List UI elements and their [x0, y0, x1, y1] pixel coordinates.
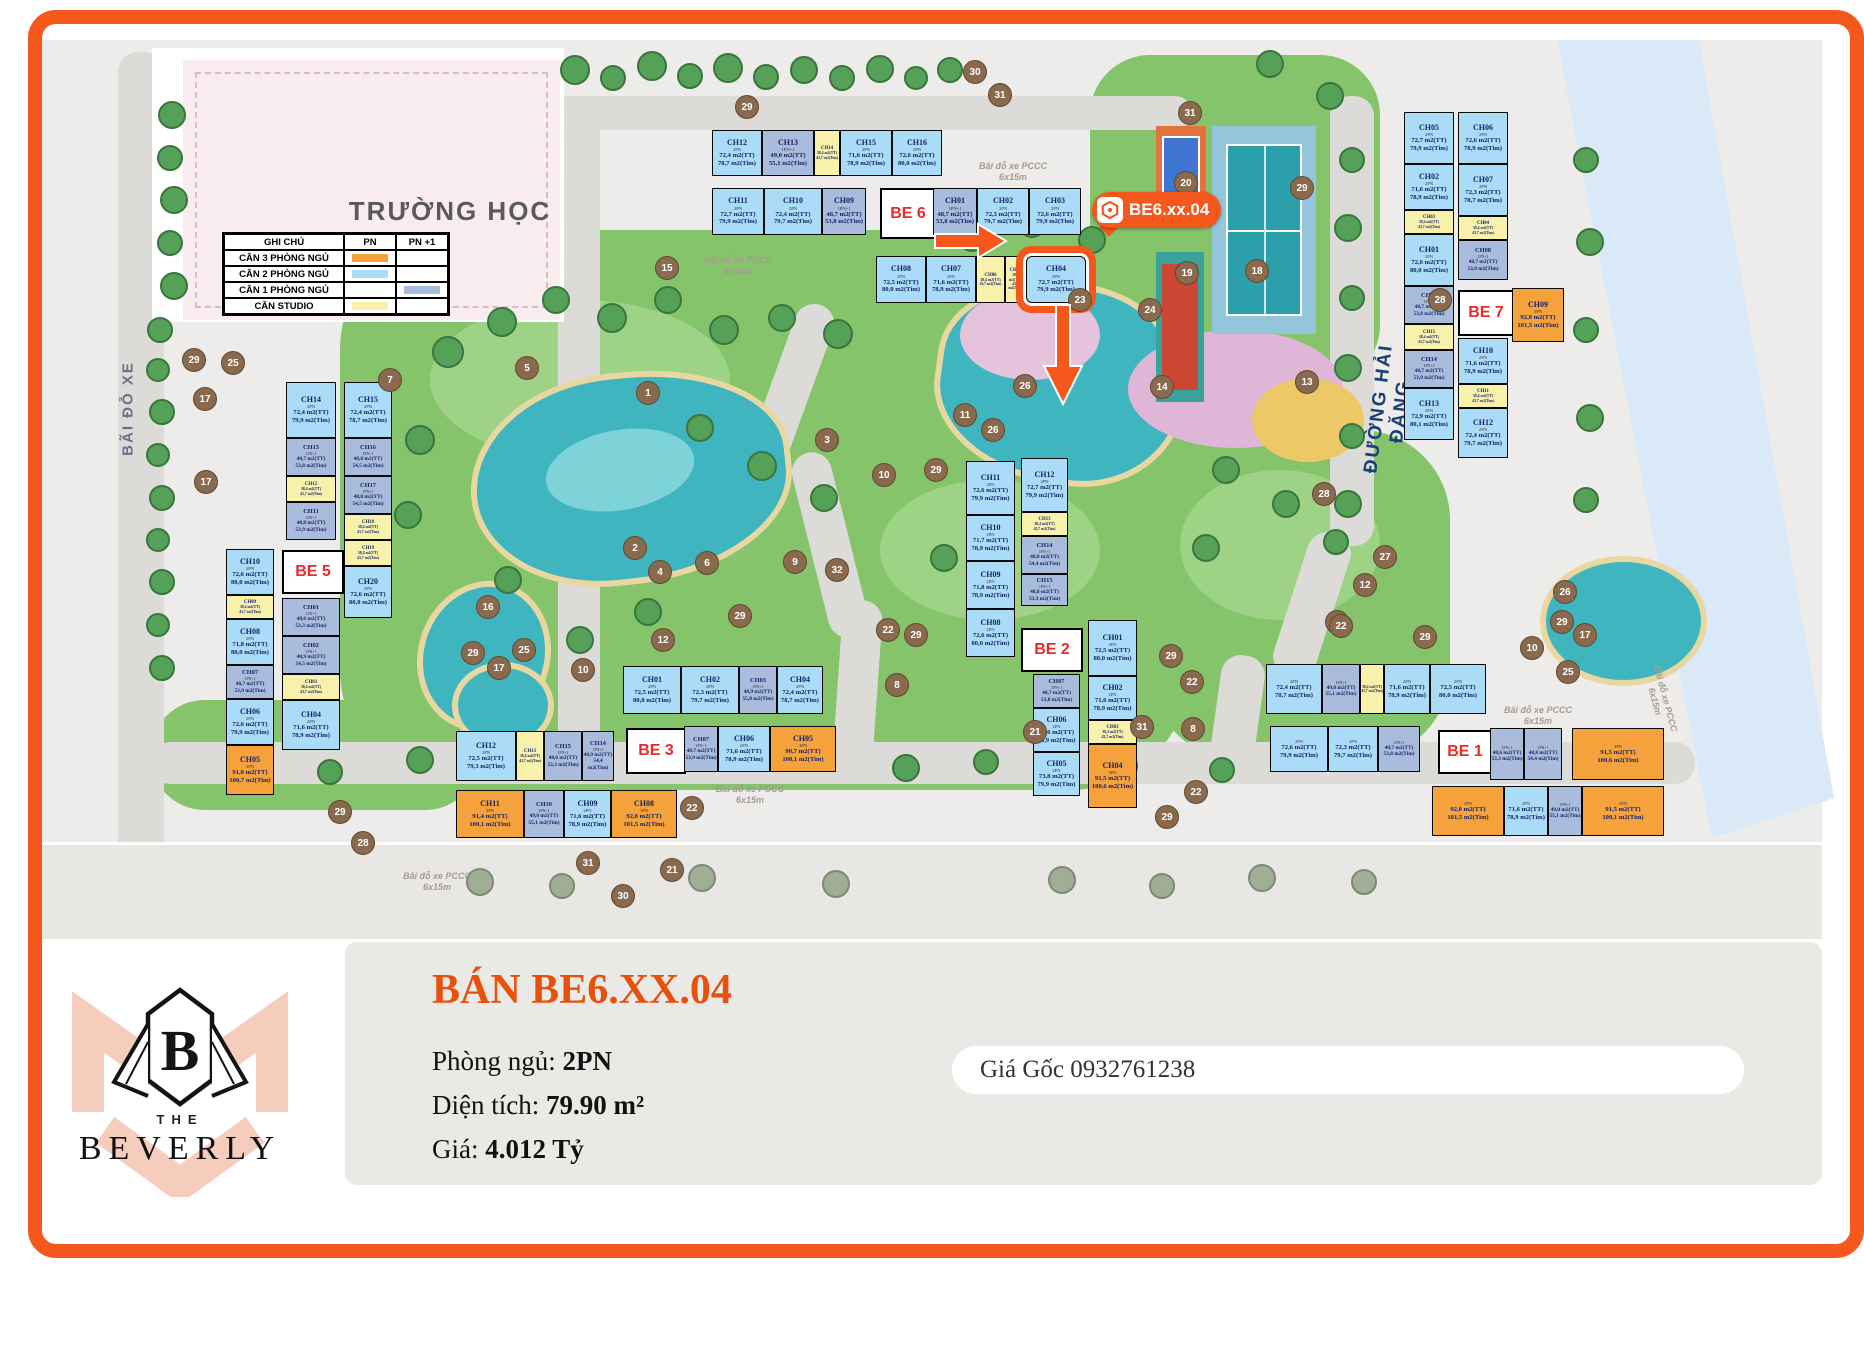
- building-group-be5: CH011PN+148,6 m2(TT)53,3 m2(Tim)CH021PN+…: [282, 598, 340, 750]
- amenity-marker: 29: [1550, 610, 1574, 634]
- unit-cell-be6-ch14[interactable]: CH14Studio38,4 m2(TT)43,7 m2(Tim): [814, 130, 840, 176]
- field-row: Diện tích: 79.90 m²: [432, 1090, 644, 1121]
- unit-cell-be2-ch15[interactable]: CH151PN+148,8 m2(TT)53,3 m2(Tim): [1021, 574, 1068, 606]
- unit-area: 101,5 m2(Tim): [1447, 814, 1488, 822]
- unit-cell-be7-ch12[interactable]: CH122PN72,4 m2(TT)79,7 m2(Tim): [1458, 408, 1508, 458]
- unit-area: 72,6 m2(TT): [232, 721, 267, 729]
- parking-label-line: Bãi đỗ xe PCCC: [1504, 705, 1572, 716]
- legend-header-cell: PN +1: [396, 234, 448, 250]
- unit-code: CH03: [1045, 197, 1065, 205]
- tree-icon: [146, 443, 170, 467]
- unit-area: 71,6 m2(TT): [1389, 684, 1424, 692]
- unit-area: 53,8 m2(Tim): [1041, 697, 1072, 703]
- unit-area: 79,9 m2(Tim): [719, 218, 757, 226]
- unit-area: 91,0 m2(TT): [232, 769, 267, 777]
- amenity-marker: 17: [194, 470, 218, 494]
- amenity-marker: 29: [328, 800, 352, 824]
- unit-cell-be3-ch03[interactable]: CH031PN+148,9 m2(TT)55,0 m2(Tim): [739, 666, 777, 714]
- unit-area: 72,4 m2(TT): [293, 409, 328, 417]
- parking-label-line: 6x15m: [704, 266, 772, 277]
- building-group-be1: 2PN72,4 m2(TT)78,7 m2(Tim)1PN+149,0 m2(T…: [1266, 664, 1486, 714]
- building-group-be6: CH112PN72,7 m2(TT)79,9 m2(Tim)CH102PN72,…: [712, 188, 866, 235]
- tree-icon: [709, 315, 739, 345]
- unit-area: 91,5 m2(TT): [1605, 806, 1640, 814]
- unit-area: 53,3 m2(Tim): [547, 762, 578, 768]
- tree-icon: [634, 598, 662, 626]
- callout-logo-icon: [1097, 197, 1123, 223]
- unit-cell-be3-ch07[interactable]: CH071PN+148,7 m2(TT)53,9 m2(Tim): [684, 726, 718, 772]
- unit-area: 55,1 m2(Tim): [528, 820, 559, 826]
- unit-cell-be3-ch12[interactable]: CH122PN72,5 m2(TT)79,3 m2(Tim): [456, 731, 516, 781]
- legend-swatch: [404, 286, 440, 294]
- unit-cell-be2-ch14[interactable]: CH141PN+148,8 m2(TT)54,4 m2(Tim): [1021, 536, 1068, 574]
- unit-cell-be2-ch10[interactable]: CH102PN71,7 m2(TT)78,9 m2(Tim): [966, 515, 1015, 561]
- unit-cell-be5-ch16[interactable]: CH161PN+148,8 m2(TT)54,5 m2(Tim): [344, 438, 392, 476]
- unit-area: 72,4 m2(TT): [775, 211, 810, 219]
- info-title: BÁN BE6.XX.04: [432, 966, 732, 1014]
- unit-cell-be6-ch08[interactable]: CH082PN72,5 m2(TT)80,0 m2(Tim): [876, 256, 926, 303]
- unit-area: 79,9 m2(Tim): [1036, 218, 1074, 226]
- unit-cell-be2-ch01[interactable]: CH012PN72,5 m2(TT)80,0 m2(Tim): [1088, 620, 1137, 676]
- tree-icon: [494, 566, 522, 594]
- unit-area: 78,7 m2(Tim): [718, 160, 756, 168]
- unit-cell-be2-ch05[interactable]: CH052PN73,8 m2(TT)79,9 m2(Tim): [1033, 752, 1080, 796]
- callout-label: BE6.xx.04: [1129, 200, 1209, 220]
- unit-cell-be7-ch13[interactable]: CH132PN72,9 m2(TT)80,1 m2(Tim): [1404, 388, 1454, 440]
- legend-swatch-pn1: [396, 282, 448, 298]
- unit-area: 71,7 m2(TT): [973, 537, 1008, 545]
- unit-code: CH06: [1047, 716, 1067, 724]
- tree-icon: [1248, 864, 1276, 892]
- unit-cell-be2-ch02[interactable]: CH022PN71,6 m2(TT)78,9 m2(Tim): [1088, 676, 1137, 720]
- unit-cell-be3-ch09[interactable]: CH092PN71,6 m2(TT)78,9 m2(Tim): [564, 790, 611, 838]
- unit-area: 72,3 m2(TT): [1335, 744, 1370, 752]
- unit-area: 80,0 m2(Tim): [1439, 692, 1477, 700]
- tree-icon: [930, 544, 958, 572]
- unit-area: 72,5 m2(TT): [468, 755, 503, 763]
- unit-code: CH04: [790, 676, 810, 684]
- unit-cell-be5-ch09[interactable]: CH09Studio38,4 m2(TT)43,7 m2(Tim): [226, 595, 274, 619]
- tree-icon: [1339, 285, 1365, 311]
- unit-area: 55,1 m2(Tim): [1325, 691, 1356, 697]
- amenity-marker: 13: [1295, 370, 1319, 394]
- unit-cell-be3-ch10[interactable]: CH101PN+149,0 m2(TT)55,1 m2(Tim): [524, 790, 564, 838]
- unit-cell-be6-ch03[interactable]: CH032PN72,6 m2(TT)79,9 m2(Tim): [1029, 188, 1081, 235]
- unit-cell-be3-ch01[interactable]: CH012PN72,5 m2(TT)80,0 m2(Tim): [623, 666, 681, 714]
- unit-cell-be5-ch20[interactable]: CH202PN72,6 m2(TT)80,0 m2(Tim): [344, 566, 392, 618]
- amenity-marker: 22: [1184, 780, 1208, 804]
- unit-area: 100,6 m2(Tim): [1597, 757, 1638, 765]
- amenity-marker: 3: [815, 428, 839, 452]
- amenity-marker: 19: [1175, 261, 1199, 285]
- unit-area: 100,1 m2(Tim): [782, 756, 823, 764]
- unit-cell-be2-ch07[interactable]: CH071PN+148,7 m2(TT)53,8 m2(Tim): [1033, 674, 1080, 708]
- amenity-marker: 28: [351, 831, 375, 855]
- unit-area: 55,0 m2(Tim): [742, 696, 773, 702]
- unit-area: 72,5 m2(TT): [1440, 684, 1475, 692]
- unit-cell-be3-ch02[interactable]: CH022PN72,3 m2(TT)79,7 m2(Tim): [681, 666, 739, 714]
- legend-row: CĂN 2 PHÒNG NGỦ: [224, 266, 448, 282]
- legend-row: CĂN 1 PHÒNG NGỦ: [224, 282, 448, 298]
- unit-area: 79,7 m2(Tim): [1334, 752, 1372, 760]
- unit-cell-be2-ch04[interactable]: CH043PN91,5 m2(TT)100,6 m2(Tim): [1088, 744, 1137, 808]
- unit-area: 53,3 m2(Tim): [1029, 596, 1060, 602]
- amenity-marker: 29: [461, 641, 485, 665]
- unit-area: 91,5 m2(TT): [1600, 749, 1635, 757]
- legend-row: CĂN 3 PHÒNG NGỦ: [224, 250, 448, 266]
- unit-area: 79,3 m2(Tim): [467, 763, 505, 771]
- unit-cell-be3-ch04[interactable]: CH042PN72,4 m2(TT)78,7 m2(Tim): [777, 666, 823, 714]
- unit-area: 72,4 m2(TT): [719, 152, 754, 160]
- unit-code: CH06: [240, 708, 260, 716]
- unit-area: 80,0 m2(Tim): [882, 286, 920, 294]
- unit-area: 43,7 m2(Tim): [1418, 340, 1440, 344]
- building-group-be1: 3PN91,5 m2(TT)100,6 m2(Tim): [1572, 728, 1664, 780]
- unit-area: 71,6 m2(TT): [1508, 806, 1543, 814]
- amenity-marker: 10: [1520, 636, 1544, 660]
- unit-cell-be5-ch06[interactable]: CH062PN72,6 m2(TT)79,9 m2(Tim): [226, 699, 274, 745]
- amenity-marker: 24: [1138, 298, 1162, 322]
- unit-area: 72,4 m2(TT): [1276, 684, 1311, 692]
- tree-icon: [157, 230, 183, 256]
- unit-cell-be5-ch02[interactable]: CH021PN+148,9 m2(TT)54,5 m2(Tim): [282, 636, 340, 674]
- unit-cell-be5-ch19[interactable]: CH19Studio38,4 m2(TT)43,7 m2(Tim): [344, 540, 392, 566]
- unit-code: CH10: [1473, 347, 1493, 355]
- unit-area: 71,6 m2(TT): [1095, 697, 1130, 705]
- unit-cell[interactable]: 1PN+148,7 m2(TT)53,8 m2(Tim): [1378, 726, 1420, 772]
- unit-cell-be5-ch10[interactable]: CH102PN72,6 m2(TT)80,0 m2(Tim): [226, 549, 274, 595]
- unit-cell-be3-ch08[interactable]: CH083PN92,0 m2(TT)101,5 m2(Tim): [611, 790, 677, 838]
- amenity-marker: 28: [1312, 482, 1336, 506]
- tree-icon: [149, 655, 175, 681]
- parking-label-line: 6x15m: [716, 795, 784, 806]
- unit-area: 71,6 m2(TT): [848, 152, 883, 160]
- unit-cell-be7-ch05[interactable]: CH052PN72,7 m2(TT)79,9 m2(Tim): [1404, 112, 1454, 164]
- unit-cell-be3-ch05[interactable]: CH053PN90,7 m2(TT)100,1 m2(Tim): [770, 726, 836, 772]
- unit-cell[interactable]: 1PN+148,6 m2(TT)53,3 m2(Tim): [1490, 728, 1524, 780]
- unit-area: 78,9 m2(Tim): [1507, 814, 1545, 822]
- unit-cell-be6-ch09[interactable]: CH091PN+148,7 m2(TT)53,8 m2(Tim): [822, 188, 866, 235]
- unit-cell-be7-ch09[interactable]: CH093PN92,0 m2(TT)101,5 m2(Tim): [1512, 288, 1564, 342]
- unit-code: CH04: [1046, 265, 1066, 273]
- building-label-be5: BE 5: [282, 550, 344, 594]
- parking-lot-label: Bãi đỗ xe PCCC6x15m: [403, 871, 471, 893]
- unit-code: CH06: [1473, 124, 1493, 132]
- building-group-be7: CH062PN72,6 m2(TT)78,9 m2(Tim)CH072PN72,…: [1458, 112, 1508, 280]
- building-label-be1: BE 1: [1438, 730, 1492, 774]
- parking-label-line: Bãi đỗ xe PCCC: [716, 784, 784, 795]
- unit-area: 79,9 m2(Tim): [1410, 145, 1448, 153]
- unit-code: CH04: [301, 711, 321, 719]
- unit-area: 79,9 m2(Tim): [231, 729, 269, 737]
- unit-area: 72,3 m2(TT): [1465, 189, 1500, 197]
- amenity-marker: 29: [182, 348, 206, 372]
- legend-swatch: [352, 302, 388, 310]
- tree-icon: [637, 51, 667, 81]
- legend-swatch: [352, 254, 388, 262]
- unit-area: 72,6 m2(TT): [899, 152, 934, 160]
- amenity-marker: 15: [655, 256, 679, 280]
- tree-icon: [149, 569, 175, 595]
- unit-area: 71,6 m2(TT): [933, 279, 968, 287]
- unit-area: 80,0 m2(Tim): [898, 160, 936, 168]
- unit-cell-be3-ch13[interactable]: CH13Studio38,4 m2(TT)43,7 m2(Tim): [516, 731, 544, 781]
- amenity-marker: 12: [651, 628, 675, 652]
- unit-cell[interactable]: Studio38,4 m2(TT)43,7 m2(Tim): [1360, 664, 1384, 714]
- unit-area: 80,0 m2(Tim): [633, 697, 671, 705]
- unit-cell-be7-ch06[interactable]: CH062PN72,6 m2(TT)78,9 m2(Tim): [1458, 112, 1508, 164]
- unit-cell-be5-ch08[interactable]: CH082PN71,8 m2(TT)80,0 m2(Tim): [226, 619, 274, 665]
- unit-cell-be5-ch01[interactable]: CH011PN+148,6 m2(TT)53,3 m2(Tim): [282, 598, 340, 636]
- unit-area: 72,5 m2(TT): [1095, 647, 1130, 655]
- tree-icon: [1149, 873, 1175, 899]
- unit-code: CH09: [981, 571, 1001, 579]
- unit-cell[interactable]: 2PN71,6 m2(TT)78,9 m2(Tim): [1504, 786, 1548, 836]
- unit-code: CH01: [945, 197, 965, 205]
- unit-area: 48,7 m2(TT): [937, 211, 972, 219]
- unit-code: CH12: [1473, 419, 1493, 427]
- callout-be6xx04[interactable]: BE6.xx.04: [1092, 192, 1221, 228]
- unit-area: 78,7 m2(Tim): [1275, 692, 1313, 700]
- unit-area: 43,7 m2(Tim): [1034, 527, 1056, 531]
- tree-icon: [1316, 82, 1344, 110]
- unit-cell-be3-ch14[interactable]: CH141PN+148,9 m2(TT)54,4 m2(Tim): [582, 731, 614, 781]
- school-label: TRƯỜNG HỌC: [330, 196, 570, 227]
- amenity-marker: 10: [872, 463, 896, 487]
- unit-cell-be2-ch11[interactable]: CH112PN72,6 m2(TT)79,9 m2(Tim): [966, 461, 1015, 515]
- tree-icon: [1048, 866, 1076, 894]
- unit-cell-be6-ch10[interactable]: CH102PN72,4 m2(TT)79,7 m2(Tim): [764, 188, 822, 235]
- tree-icon: [1573, 487, 1599, 513]
- unit-cell[interactable]: 2PN72,6 m2(TT)79,9 m2(Tim): [1270, 726, 1328, 772]
- unit-area: 80,1 m2(Tim): [1410, 421, 1448, 429]
- unit-cell-be5-ch13[interactable]: CH131PN+148,7 m2(TT)53,8 m2(Tim): [286, 438, 336, 476]
- tree-icon: [1576, 228, 1604, 256]
- tree-icon: [542, 286, 570, 314]
- unit-area: 72,4 m2(TT): [350, 409, 385, 417]
- unit-cell-be7-ch10[interactable]: CH102PN71,6 m2(TT)78,9 m2(Tim): [1458, 338, 1508, 384]
- amenity-marker: 31: [1178, 101, 1202, 125]
- unit-area: 71,6 m2(TT): [726, 748, 761, 756]
- unit-code: CH14: [301, 396, 321, 404]
- parking-label-line: 6x15m: [1504, 716, 1572, 727]
- unit-cell-be5-ch11[interactable]: CH111PN+148,8 m2(TT)53,9 m2(Tim): [286, 502, 336, 540]
- road: [552, 96, 1192, 130]
- unit-cell-be6-ch15[interactable]: CH152PN71,6 m2(TT)78,9 m2(Tim): [840, 130, 892, 176]
- unit-area: 79,7 m2(Tim): [1464, 440, 1502, 448]
- unit-cell-be5-ch03[interactable]: CH03Studio38,4 m2(TT)43,7 m2(Tim): [282, 674, 340, 700]
- unit-cell-be5-ch04[interactable]: CH042PN71,6 m2(TT)78,9 m2(Tim): [282, 700, 340, 750]
- unit-code: CH09: [834, 197, 854, 205]
- parking-label-line: 6x15m: [979, 172, 1047, 183]
- unit-area: 43,7 m2(Tim): [357, 556, 379, 560]
- unit-cell-be6-ch13[interactable]: CH131PN+149,0 m2(TT)55,1 m2(Tim): [762, 130, 814, 176]
- unit-cell-be6-ch07[interactable]: CH072PN71,6 m2(TT)78,9 m2(Tim): [926, 256, 976, 303]
- unit-cell-be7-ch01[interactable]: CH012PN72,6 m2(TT)80,0 m2(Tim): [1404, 234, 1454, 286]
- unit-cell-be3-ch06[interactable]: CH062PN71,6 m2(TT)78,9 m2(Tim): [718, 726, 770, 772]
- tennis-court: [1212, 126, 1316, 334]
- unit-cell[interactable]: 3PN91,5 m2(TT)100,6 m2(Tim): [1572, 728, 1664, 780]
- unit-code: CH13: [778, 139, 798, 147]
- tree-icon: [1573, 317, 1599, 343]
- building-label-be2: BE 2: [1021, 628, 1083, 672]
- unit-area: 54,4 m2(Tim): [583, 758, 613, 770]
- unit-area: 48,7 m2(TT): [826, 211, 861, 219]
- unit-cell[interactable]: 3PN91,5 m2(TT)100,1 m2(Tim): [1582, 786, 1664, 836]
- unit-code: CH12: [476, 742, 496, 750]
- unit-cell-be6-ch16[interactable]: CH162PN72,6 m2(TT)80,0 m2(Tim): [892, 130, 942, 176]
- amenity-marker: 17: [487, 656, 511, 680]
- unit-code: CH11: [480, 800, 500, 808]
- parking-label-line: Bãi đỗ xe PCCC: [979, 161, 1047, 172]
- unit-cell-be3-ch11[interactable]: CH113PN91,4 m2(TT)100,1 m2(Tim): [456, 790, 524, 838]
- road-label-parking: BÃI ĐỖ XE: [120, 339, 137, 479]
- unit-cell-be6-ch06[interactable]: CH06Studio38,4 m2(TT)43,7 m2(Tim): [976, 256, 1005, 303]
- unit-cell[interactable]: 3PN92,0 m2(TT)101,5 m2(Tim): [1432, 786, 1504, 836]
- tree-icon: [432, 336, 464, 368]
- amenity-marker: 18: [1245, 259, 1269, 283]
- unit-area: 80,0 m2(Tim): [972, 640, 1010, 648]
- tree-icon: [1209, 757, 1235, 783]
- amenity-marker: 1: [636, 381, 660, 405]
- legend-swatch-pn1: [396, 266, 448, 282]
- unit-area: 79,9 m2(Tim): [1038, 781, 1076, 789]
- parking-lot-label: Bãi đỗ xe PCCC6x15m: [1504, 705, 1572, 727]
- field-label: Giá:: [432, 1134, 485, 1164]
- unit-code: CH02: [700, 676, 720, 684]
- arrow-down-icon: [1040, 304, 1086, 408]
- unit-cell-be5-ch12[interactable]: CH12Studio38,4 m2(TT)43,7 m2(Tim): [286, 476, 336, 502]
- building-label-be6: BE 6: [880, 188, 936, 239]
- unit-cell-be7-ch15[interactable]: CH15Studio38,4 m2(TT)43,7 m2(Tim): [1404, 324, 1454, 350]
- building-group-be5: CH152PN72,4 m2(TT)78,7 m2(Tim)CH161PN+14…: [344, 382, 392, 618]
- unit-code: CH12: [727, 139, 747, 147]
- unit-area: 53,3 m2(Tim): [1491, 756, 1522, 762]
- amenity-marker: 29: [1155, 805, 1179, 829]
- unit-cell-be2-ch12[interactable]: CH122PN72,7 m2(TT)79,9 m2(Tim): [1021, 458, 1068, 512]
- legend-header-cell: GHI CHÚ: [224, 234, 344, 250]
- unit-area: 53,9 m2(Tim): [685, 755, 716, 761]
- unit-area: 71,6 m2(TT): [1465, 360, 1500, 368]
- amenity-marker: 4: [648, 560, 672, 584]
- tree-icon: [937, 57, 963, 83]
- building-group-be6: CH082PN72,5 m2(TT)80,0 m2(Tim)CH072PN71,…: [876, 256, 1086, 303]
- unit-code: CH07: [1473, 176, 1493, 184]
- parking-label-line: Bãi đỗ xe PCCC: [704, 255, 772, 266]
- unit-cell-be6-ch12[interactable]: CH122PN72,4 m2(TT)78,7 m2(Tim): [712, 130, 762, 176]
- unit-cell-be7-ch14[interactable]: CH141PN+148,7 m2(TT)53,9 m2(Tim): [1404, 350, 1454, 388]
- unit-cell[interactable]: 2PN71,6 m2(TT)78,9 m2(Tim): [1384, 664, 1430, 714]
- pavement: [42, 842, 1822, 939]
- amenity-marker: 6: [695, 551, 719, 575]
- unit-area: 80,0 m2(Tim): [1410, 267, 1448, 275]
- unit-cell-be2-ch13[interactable]: CH13Studio38,4 m2(TT)43,7 m2(Tim): [1021, 512, 1068, 536]
- unit-cell-be7-ch07[interactable]: CH072PN72,3 m2(TT)78,7 m2(Tim): [1458, 164, 1508, 216]
- unit-area: 55,1 m2(Tim): [1549, 813, 1580, 819]
- legend-swatch-pn: [344, 298, 396, 314]
- unit-cell-be5-ch17[interactable]: CH171PN+148,8 m2(TT)54,5 m2(Tim): [344, 476, 392, 514]
- unit-cell-be2-ch08[interactable]: CH082PN72,6 m2(TT)80,0 m2(Tim): [966, 609, 1015, 657]
- unit-cell[interactable]: 2PN72,3 m2(TT)79,7 m2(Tim): [1328, 726, 1378, 772]
- unit-area: 78,9 m2(Tim): [972, 545, 1010, 553]
- building-group-be3: CH012PN72,5 m2(TT)80,0 m2(Tim)CH022PN72,…: [623, 666, 823, 714]
- tree-icon: [146, 528, 170, 552]
- unit-area: 54,4 m2(Tim): [1527, 756, 1558, 762]
- unit-code: CH06: [734, 735, 754, 743]
- unit-area: 78,9 m2(Tim): [569, 821, 607, 829]
- unit-code: CH05: [1419, 124, 1439, 132]
- tree-icon: [866, 55, 894, 83]
- unit-area: 79,7 m2(Tim): [691, 697, 729, 705]
- amenity-marker: 25: [512, 638, 536, 662]
- unit-area: 54,5 m2(Tim): [295, 661, 326, 667]
- unit-area: 53,9 m2(Tim): [295, 527, 326, 533]
- unit-cell-be6-ch05[interactable]: CH05Studio38,4 m2(TT)43,7 m2(Tim): [1005, 256, 1026, 303]
- unit-cell-be5-ch07[interactable]: CH071PN+148,7 m2(TT)53,9 m2(Tim): [226, 665, 274, 699]
- tree-icon: [1334, 354, 1362, 382]
- unit-area: 78,7 m2(Tim): [781, 697, 819, 705]
- tree-icon: [1576, 404, 1604, 432]
- unit-cell[interactable]: 1PN+148,8 m2(TT)54,4 m2(Tim): [1524, 728, 1562, 780]
- unit-area: 72,4 m2(TT): [782, 689, 817, 697]
- amenity-marker: 7: [378, 368, 402, 392]
- unit-cell-be5-ch14[interactable]: CH142PN72,4 m2(TT)79,9 m2(Tim): [286, 382, 336, 438]
- unit-cell-be2-ch09[interactable]: CH092PN71,8 m2(TT)78,9 m2(Tim): [966, 561, 1015, 609]
- unit-cell-be7-ch03[interactable]: CH03Studio38,4 m2(TT)43,7 m2(Tim): [1404, 210, 1454, 234]
- tree-icon: [405, 425, 435, 455]
- unit-cell-be3-ch15[interactable]: CH151PN+148,6 m2(TT)53,3 m2(Tim): [544, 731, 582, 781]
- unit-code: CH10: [783, 197, 803, 205]
- unit-area: 53,8 m2(Tim): [1383, 751, 1414, 757]
- unit-cell-be7-ch11[interactable]: CH11Studio38,4 m2(TT)43,7 m2(Tim): [1458, 384, 1508, 408]
- unit-cell-be7-ch08[interactable]: CH081PN+148,7 m2(TT)53,8 m2(Tim): [1458, 240, 1508, 280]
- unit-cell-be5-ch18[interactable]: CH18Studio38,4 m2(TT)43,7 m2(Tim): [344, 514, 392, 540]
- amenity-marker: 25: [221, 351, 245, 375]
- unit-area: 43,7 m2(Tim): [980, 282, 1002, 286]
- logo-monogram: B: [161, 1018, 200, 1083]
- tree-icon: [1272, 490, 1300, 518]
- unit-code: CH20: [358, 578, 378, 586]
- unit-area: 72,6 m2(TT): [1281, 744, 1316, 752]
- amenity-marker: 8: [1181, 717, 1205, 741]
- unit-code: CH01: [1419, 246, 1439, 254]
- unit-cell-be5-ch05[interactable]: CH053PN91,0 m2(TT)100,7 m2(Tim): [226, 745, 274, 795]
- tree-icon: [713, 53, 743, 83]
- unit-cell[interactable]: 1PN+149,0 m2(TT)55,1 m2(Tim): [1548, 786, 1582, 836]
- unit-cell[interactable]: 2PN72,4 m2(TT)78,7 m2(Tim): [1266, 664, 1322, 714]
- amenity-marker: 29: [728, 604, 752, 628]
- building-label-be3: BE 3: [626, 728, 686, 774]
- unit-cell-be6-ch11[interactable]: CH112PN72,7 m2(TT)79,9 m2(Tim): [712, 188, 764, 235]
- building-group-be5: CH142PN72,4 m2(TT)79,9 m2(Tim)CH131PN+14…: [286, 382, 336, 540]
- unit-area: 71,6 m2(TT): [293, 724, 328, 732]
- unit-area: 54,4 m2(Tim): [1029, 561, 1060, 567]
- unit-cell[interactable]: 2PN72,5 m2(TT)80,0 m2(Tim): [1430, 664, 1486, 714]
- building-group-be3: CH071PN+148,7 m2(TT)53,9 m2(Tim)CH062PN7…: [684, 726, 836, 772]
- tree-icon: [466, 868, 494, 896]
- building-group-be6: CH122PN72,4 m2(TT)78,7 m2(Tim)CH131PN+14…: [712, 130, 942, 176]
- unit-cell[interactable]: 1PN+149,0 m2(TT)55,1 m2(Tim): [1322, 664, 1360, 714]
- legend-header: GHI CHÚPNPN +1: [224, 234, 448, 250]
- unit-cell-be7-ch02[interactable]: CH022PN71,6 m2(TT)78,9 m2(Tim): [1404, 164, 1454, 210]
- unit-area: 79,9 m2(Tim): [292, 417, 330, 425]
- building-group-be1: 1PN+148,6 m2(TT)53,3 m2(Tim)1PN+148,8 m2…: [1490, 728, 1562, 780]
- unit-cell-be7-ch04[interactable]: CH04Studio38,4 m2(TT)43,7 m2(Tim): [1458, 216, 1508, 240]
- unit-area: 43,7 m2(Tim): [1102, 735, 1124, 739]
- unit-area: 78,9 m2(Tim): [292, 732, 330, 740]
- amenity-marker: 26: [981, 418, 1005, 442]
- unit-code: CH02: [1419, 173, 1439, 181]
